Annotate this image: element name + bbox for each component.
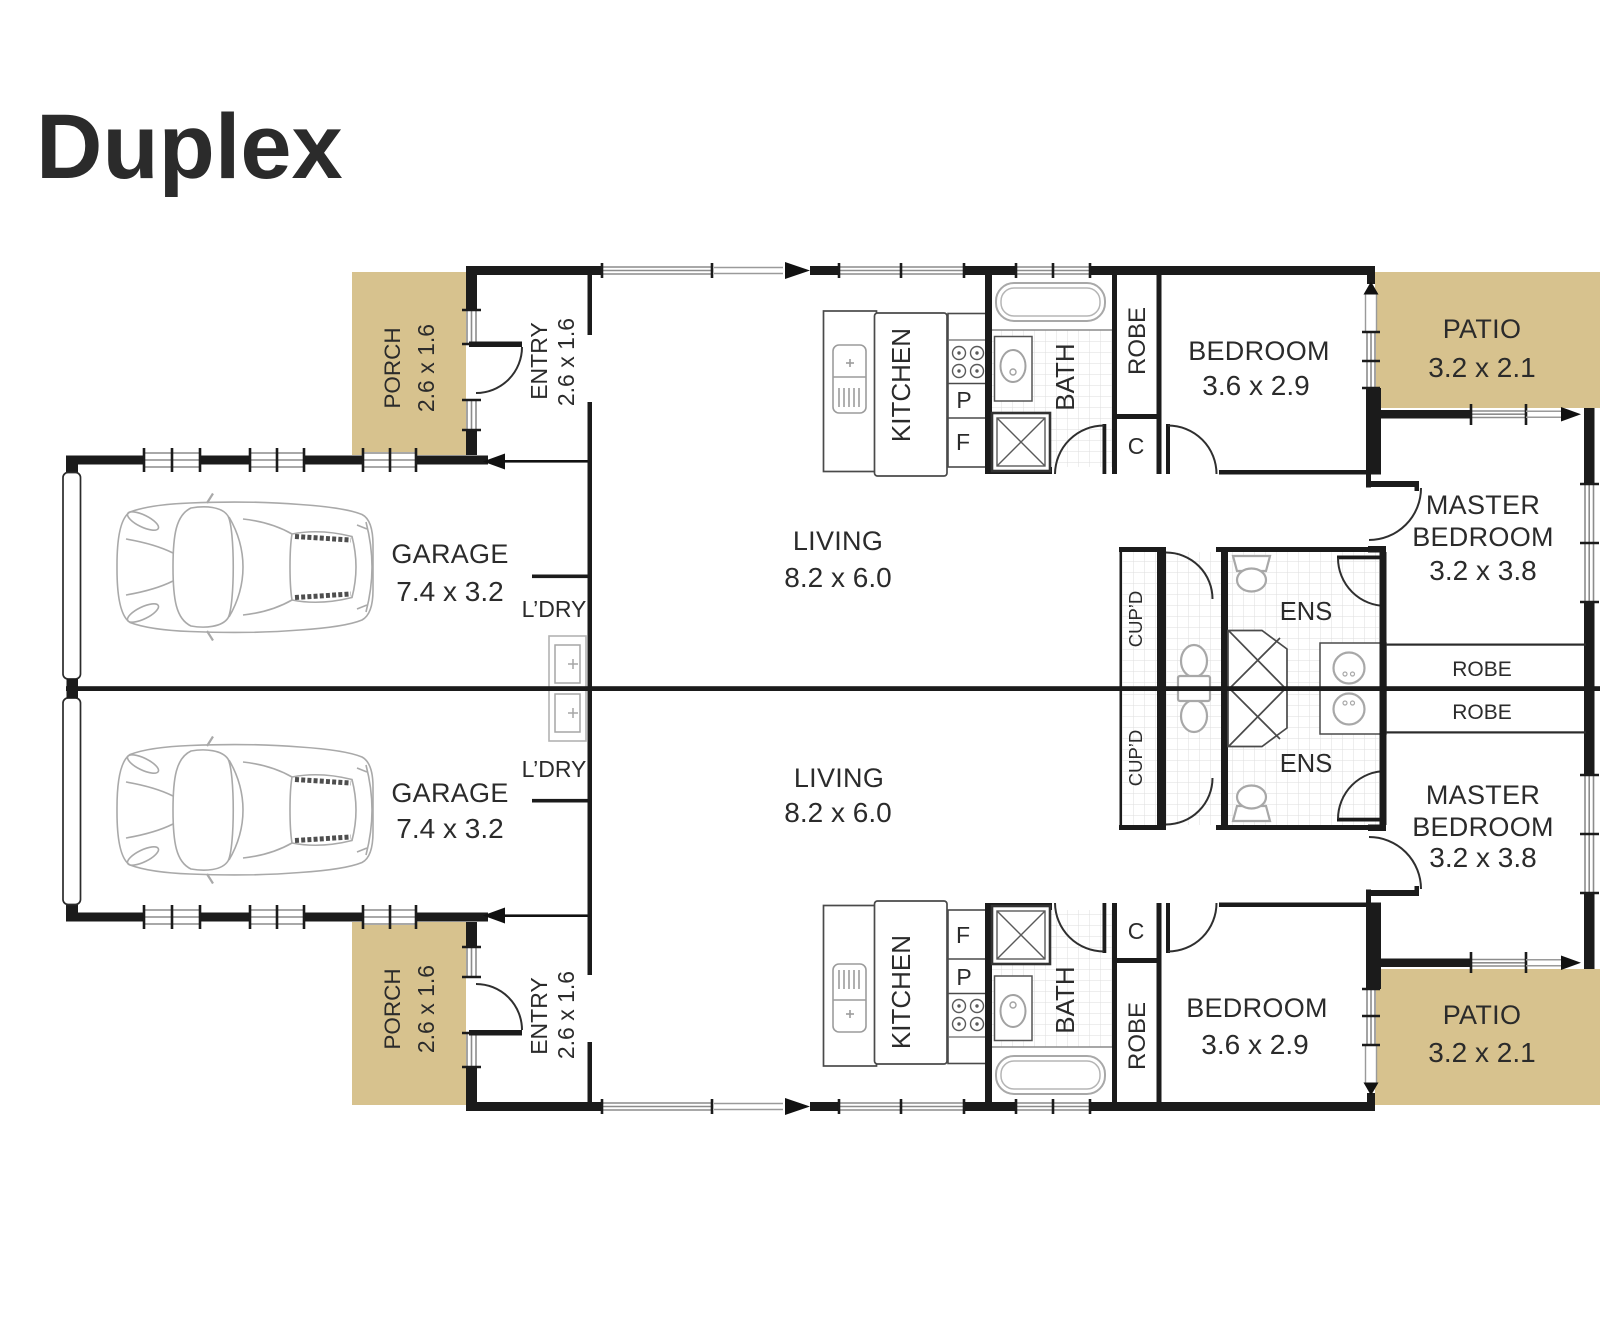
svg-text:MASTER: MASTER xyxy=(1426,490,1540,520)
svg-text:L’DRY: L’DRY xyxy=(522,596,587,622)
svg-text:2.6 x 1.6: 2.6 x 1.6 xyxy=(413,324,439,412)
svg-text:MASTER: MASTER xyxy=(1426,780,1540,810)
svg-text:ROBE: ROBE xyxy=(1124,1002,1151,1070)
svg-text:ENTRY: ENTRY xyxy=(526,977,552,1055)
svg-text:ROBE: ROBE xyxy=(1452,658,1512,681)
svg-text:P: P xyxy=(956,964,971,990)
svg-text:BEDROOM: BEDROOM xyxy=(1188,336,1330,366)
svg-text:3.2 x 3.8: 3.2 x 3.8 xyxy=(1429,842,1536,873)
svg-text:ROBE: ROBE xyxy=(1124,307,1151,375)
svg-text:C: C xyxy=(1128,918,1145,944)
svg-text:KITCHEN: KITCHEN xyxy=(886,935,916,1049)
svg-text:CUP’D: CUP’D xyxy=(1125,591,1146,648)
svg-text:ROBE: ROBE xyxy=(1452,701,1512,724)
svg-text:3.6 x 2.9: 3.6 x 2.9 xyxy=(1201,1029,1308,1060)
svg-text:BATH: BATH xyxy=(1050,966,1080,1033)
svg-text:LIVING: LIVING xyxy=(793,526,883,556)
svg-text:3.2 x 2.1: 3.2 x 2.1 xyxy=(1428,1037,1535,1068)
svg-text:ENS: ENS xyxy=(1280,750,1332,778)
svg-text:8.2 x 6.0: 8.2 x 6.0 xyxy=(784,797,891,828)
svg-text:GARAGE: GARAGE xyxy=(391,539,508,569)
svg-text:2.6 x 1.6: 2.6 x 1.6 xyxy=(553,971,579,1059)
svg-text:C: C xyxy=(1128,433,1145,459)
svg-text:2.6 x 1.6: 2.6 x 1.6 xyxy=(413,965,439,1053)
svg-text:PATIO: PATIO xyxy=(1443,314,1522,344)
svg-text:CUP’D: CUP’D xyxy=(1125,730,1146,787)
svg-text:P: P xyxy=(956,387,971,413)
svg-text:PORCH: PORCH xyxy=(380,327,405,408)
svg-text:BEDROOM: BEDROOM xyxy=(1186,993,1328,1023)
svg-text:ENS: ENS xyxy=(1280,598,1332,626)
svg-text:3.2 x 2.1: 3.2 x 2.1 xyxy=(1428,352,1535,383)
svg-text:3.2 x 3.8: 3.2 x 3.8 xyxy=(1429,555,1536,586)
svg-text:F: F xyxy=(956,429,970,455)
svg-text:3.6 x 2.9: 3.6 x 2.9 xyxy=(1202,370,1309,401)
svg-text:PATIO: PATIO xyxy=(1443,1000,1522,1030)
svg-text:Duplex: Duplex xyxy=(36,96,343,198)
svg-text:F: F xyxy=(956,922,970,948)
svg-text:7.4 x 3.2: 7.4 x 3.2 xyxy=(396,813,503,844)
svg-text:BEDROOM: BEDROOM xyxy=(1412,522,1554,552)
svg-text:ENTRY: ENTRY xyxy=(526,322,552,400)
svg-text:LIVING: LIVING xyxy=(794,763,884,793)
svg-text:KITCHEN: KITCHEN xyxy=(886,328,916,442)
svg-text:L’DRY: L’DRY xyxy=(522,756,587,782)
svg-text:2.6 x 1.6: 2.6 x 1.6 xyxy=(553,318,579,406)
svg-text:BEDROOM: BEDROOM xyxy=(1412,812,1554,842)
svg-text:7.4 x 3.2: 7.4 x 3.2 xyxy=(396,576,503,607)
svg-text:GARAGE: GARAGE xyxy=(391,778,508,808)
svg-text:8.2 x 6.0: 8.2 x 6.0 xyxy=(784,562,891,593)
svg-text:BATH: BATH xyxy=(1050,343,1080,410)
svg-text:PORCH: PORCH xyxy=(380,968,405,1049)
